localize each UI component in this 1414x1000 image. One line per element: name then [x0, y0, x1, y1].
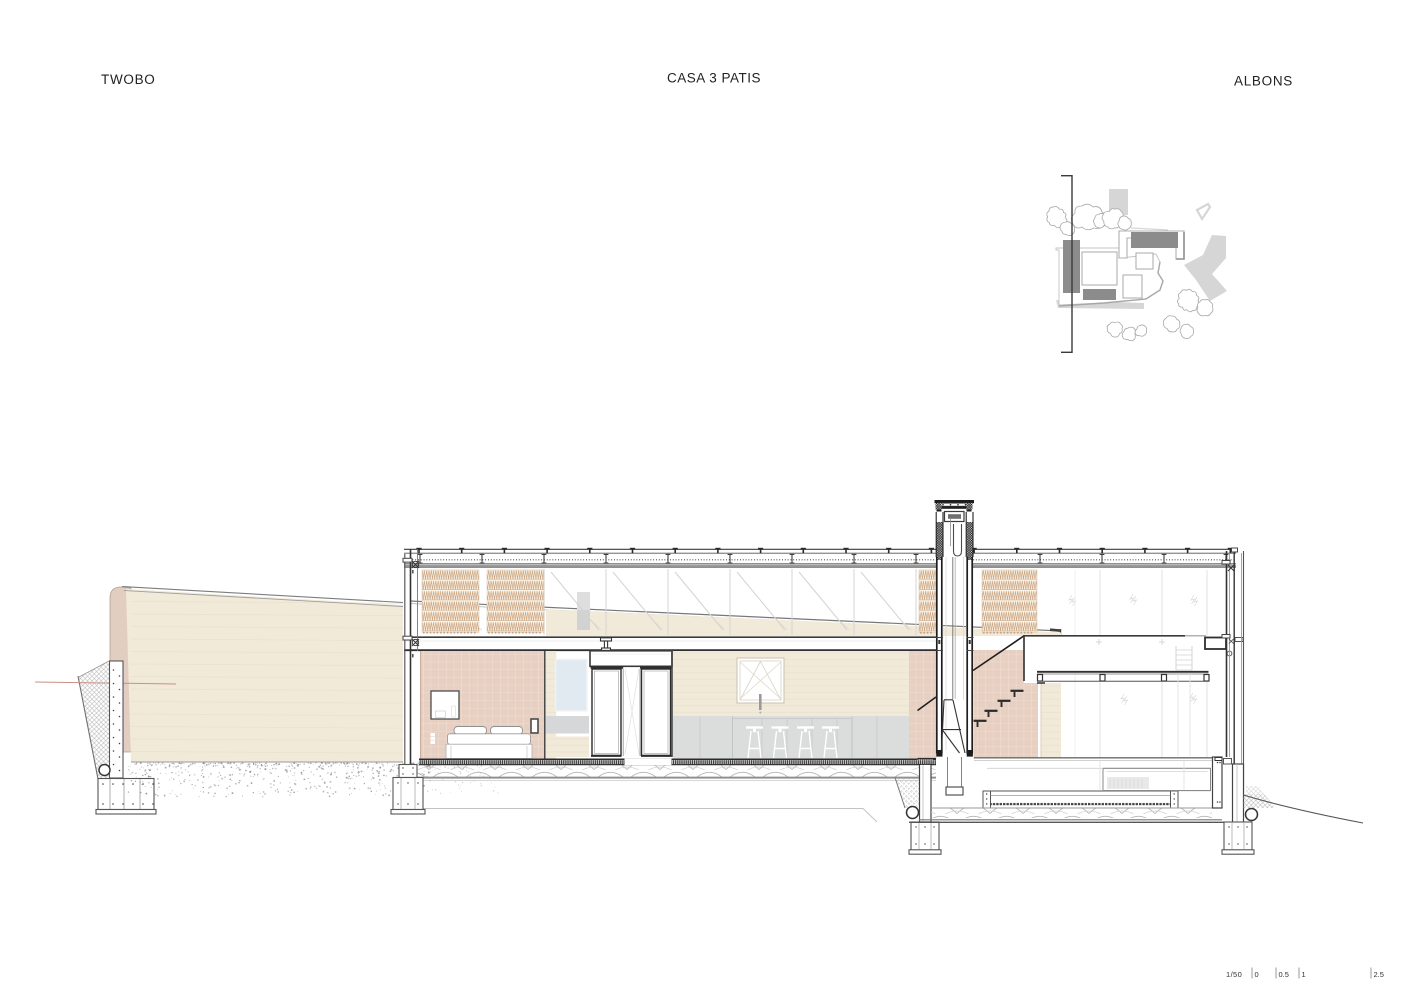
svg-text:2.5: 2.5: [1374, 970, 1384, 979]
svg-text:0: 0: [1255, 970, 1259, 979]
svg-text:1: 1: [1302, 970, 1306, 979]
svg-text:1/50: 1/50: [1226, 970, 1242, 979]
svg-text:0.5: 0.5: [1279, 970, 1289, 979]
svg-text:TWOBO: TWOBO: [101, 72, 156, 87]
svg-text:ALBONS: ALBONS: [1234, 74, 1293, 89]
svg-text:CASA 3 PATIS: CASA 3 PATIS: [667, 71, 761, 86]
